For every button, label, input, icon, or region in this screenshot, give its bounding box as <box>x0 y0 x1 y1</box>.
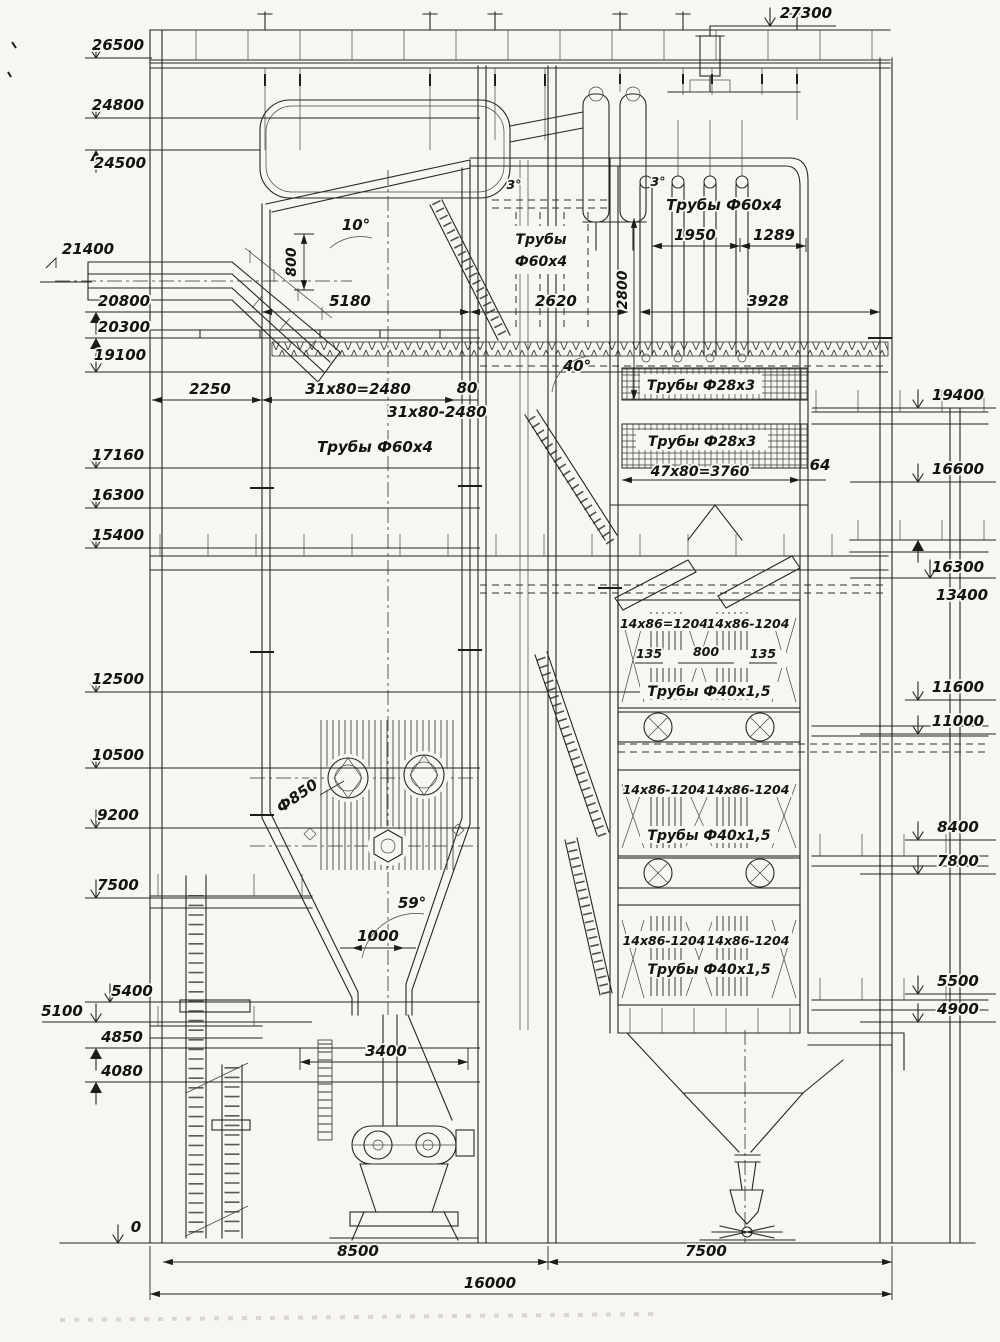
label-elev-9200: 9200 <box>97 806 139 824</box>
burner-upper-left <box>324 754 372 802</box>
label-pitch-r3a: 14х86-1204 <box>623 933 706 948</box>
label-elev-4900: 4900 <box>936 1000 979 1018</box>
angle-59: 59° <box>398 894 426 912</box>
label-pitch-r1a: 14х86=1204 <box>620 616 708 631</box>
dim-8500: 8500 <box>337 1242 379 1260</box>
safety-valve-assembly <box>668 26 800 92</box>
dim-47x80: 47х80=3760 <box>650 464 750 480</box>
label-elev-21400: 21400 <box>62 240 114 258</box>
dim-3400: 3400 <box>365 1042 407 1060</box>
ash-discharge-pot <box>730 1190 763 1224</box>
label-28x3-lower: Трубы Ф28х3 <box>648 434 756 450</box>
dim-2250: 2250 <box>189 380 231 398</box>
boiler-longitudinal-section-sheet: 27300 26500 24800 24500 21400 20800 2030… <box>0 0 1000 1342</box>
dim-1000: 1000 <box>357 927 399 945</box>
ash-hopper <box>627 1030 904 1243</box>
elevation-marks-right: 19400 16600 16300 13400 11600 11000 8400… <box>812 386 996 1022</box>
scan-speck <box>8 42 16 77</box>
dim-3928: 3928 <box>747 292 789 310</box>
dim-f850: Ф850 <box>273 775 321 816</box>
dim-5180: 5180 <box>329 292 371 310</box>
label-elev-17160: 17160 <box>92 446 144 464</box>
dim-64: 64 <box>810 456 831 474</box>
dim-16000: 16000 <box>464 1274 516 1292</box>
label-elev-24800: 24800 <box>92 96 144 114</box>
label-elev-11600: 11600 <box>932 678 984 696</box>
label-elev-13400: 13400 <box>936 586 988 604</box>
burner-upper-right <box>400 751 448 799</box>
label-elev-24500: 24500 <box>94 154 146 172</box>
label-elev-20300: 20300 <box>98 318 150 336</box>
label-elev-26500: 26500 <box>92 36 144 54</box>
dim-2800: 2800 <box>615 270 631 309</box>
dim-1950: 1950 <box>674 226 716 244</box>
label-elev-7500: 7500 <box>97 876 139 894</box>
header-band <box>618 858 800 888</box>
rotary-ash-valve <box>700 1226 795 1240</box>
label-pitch-r1b: 14х86-1204 <box>707 616 790 631</box>
dim-31x80-eq: 31х80=2480 <box>305 380 411 398</box>
furnace <box>250 158 892 1033</box>
label-elev-19400: 19400 <box>932 386 984 404</box>
label-elev-4850: 4850 <box>100 1028 143 1046</box>
dim-7500: 7500 <box>685 1242 727 1260</box>
label-pitch-r2b: 14х86-1204 <box>707 782 790 797</box>
label-elev-5100: 5100 <box>41 1002 83 1020</box>
service-platforms <box>150 330 988 1038</box>
angle-3b: 3° <box>651 174 666 189</box>
label-elev-0: 0 <box>131 1218 141 1236</box>
label-elev-16300: 16300 <box>92 486 144 504</box>
label-econ2: Трубы Ф40х1,5 <box>647 828 770 844</box>
left-stair-tower <box>180 876 250 1238</box>
label-elev-12500: 12500 <box>92 670 144 688</box>
mill-motor <box>456 1130 474 1156</box>
label-econ1: Трубы Ф40х1,5 <box>647 684 770 700</box>
label-elev-16600: 16600 <box>932 460 984 478</box>
label-elev-4080: 4080 <box>100 1062 143 1080</box>
label-elev-5400: 5400 <box>111 982 153 1000</box>
furnace-roof-slope <box>266 160 470 212</box>
label-elev-16300-right: 16300 <box>932 558 984 576</box>
label-elev-7800: 7800 <box>937 852 979 870</box>
building-frame <box>8 12 975 1243</box>
label-platen-right: Трубы Ф60х4 <box>666 196 782 214</box>
label-elev-20800: 20800 <box>98 292 150 310</box>
dim-31x80: 31х80-2480 <box>387 403 486 421</box>
label-elev-8400: 8400 <box>937 818 979 836</box>
elevation-marks-top: 27300 <box>736 4 836 26</box>
gas-turning-vanes <box>615 556 800 610</box>
label-platen-line1: Трубы <box>515 232 566 248</box>
dim-2620: 2620 <box>535 292 577 310</box>
dim-800-econ: 800 <box>693 644 719 659</box>
angle-10: 10° <box>342 216 370 234</box>
boiler-drawing: 27300 26500 24800 24500 21400 20800 2030… <box>0 0 1000 1342</box>
label-elev-10500: 10500 <box>92 746 144 764</box>
burner-lower <box>368 826 408 866</box>
dim-135b: 135 <box>750 646 776 661</box>
label-elev-15400: 15400 <box>92 526 144 544</box>
label-elev-5500: 5500 <box>937 972 979 990</box>
header-band <box>618 712 800 742</box>
dim-800-roof: 800 <box>284 247 300 276</box>
label-platen-line2: Ф60х4 <box>515 254 567 270</box>
dim-135a: 135 <box>636 646 662 661</box>
dim-80: 80 <box>457 379 478 397</box>
label-pitch-r3b: 14х86-1204 <box>707 933 790 948</box>
illegible-caption-smudge <box>60 1314 660 1320</box>
label-elev-11000: 11000 <box>932 712 984 730</box>
label-furnace-tubes: Трубы Ф60х4 <box>317 438 433 456</box>
label-elev-top: 27300 <box>780 4 832 22</box>
angle-3a: 3° <box>507 177 522 192</box>
label-elev-19100: 19100 <box>94 346 146 364</box>
label-28x3-upper: Трубы Ф28х3 <box>647 378 755 394</box>
label-pitch-r2a: 14х86-1204 <box>623 782 706 797</box>
dim-1289: 1289 <box>753 226 795 244</box>
label-econ3: Трубы Ф40х1,5 <box>647 962 770 978</box>
